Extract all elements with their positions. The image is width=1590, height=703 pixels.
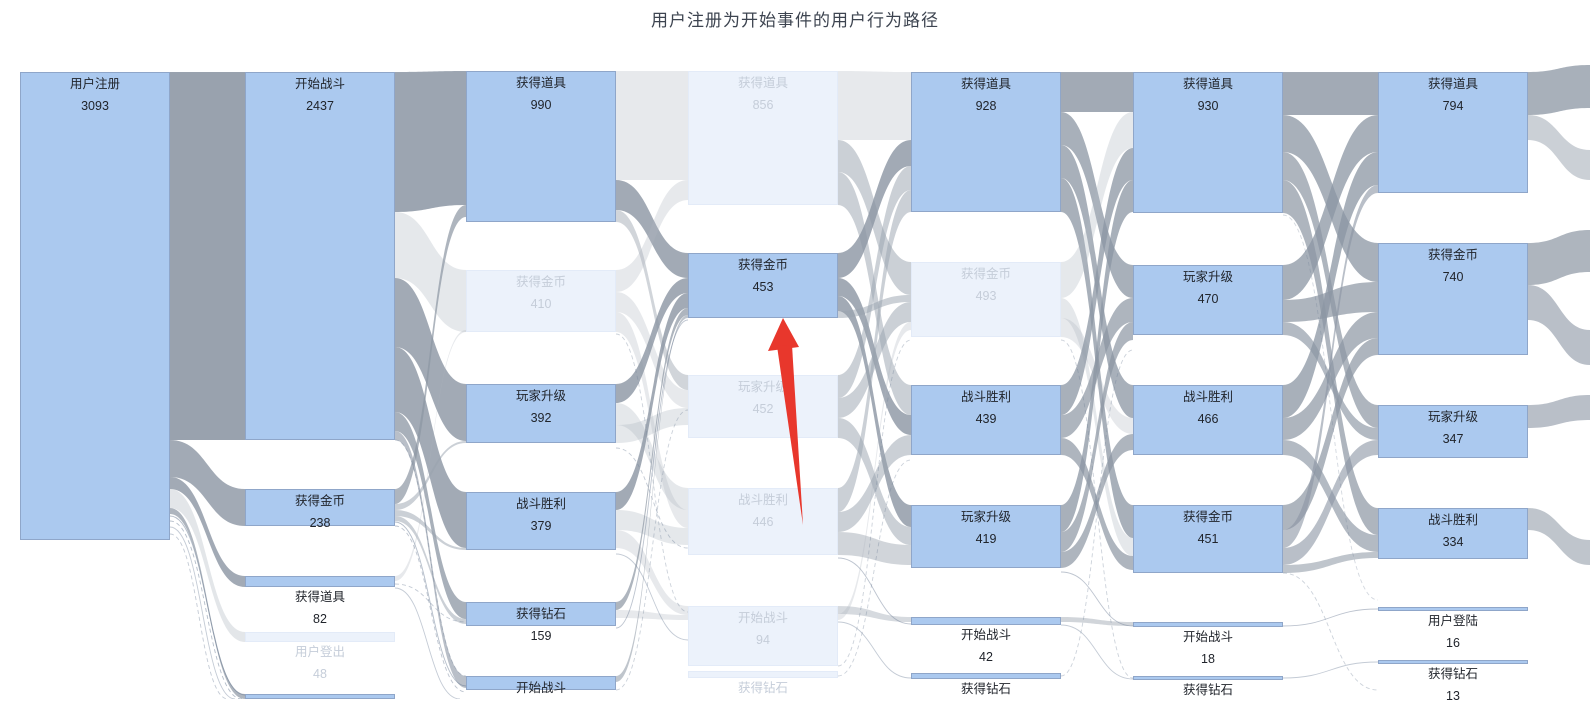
sankey-flow-line xyxy=(1283,662,1378,678)
sankey-chart: 用户注册为开始事件的用户行为路径 用户注册3093开始战斗2437获得金币238… xyxy=(0,0,1590,699)
sankey-node[interactable] xyxy=(1133,622,1283,627)
sankey-flow-line xyxy=(1283,573,1378,690)
sankey-node[interactable] xyxy=(1378,508,1528,559)
sankey-node[interactable] xyxy=(1378,243,1528,355)
sankey-node[interactable] xyxy=(911,673,1061,679)
sankey-link xyxy=(1061,180,1133,532)
sankey-node[interactable] xyxy=(1378,660,1528,664)
sankey-node[interactable] xyxy=(1133,72,1283,213)
sankey-node[interactable] xyxy=(688,375,838,438)
sankey-flow-line xyxy=(1283,609,1378,626)
sankey-node[interactable] xyxy=(245,72,395,440)
sankey-link xyxy=(1061,617,1133,626)
sankey-link xyxy=(1528,395,1590,428)
sankey-node[interactable] xyxy=(466,71,616,222)
sankey-link xyxy=(395,71,466,212)
sankey-node[interactable] xyxy=(688,488,838,555)
sankey-flow-line xyxy=(170,521,242,699)
sankey-node[interactable] xyxy=(466,492,616,550)
sankey-node[interactable] xyxy=(1133,265,1283,335)
sankey-node[interactable] xyxy=(466,602,616,626)
sankey-node[interactable] xyxy=(688,671,838,678)
sankey-node[interactable] xyxy=(911,262,1061,337)
sankey-node[interactable] xyxy=(688,606,838,666)
sankey-node[interactable] xyxy=(466,270,616,332)
sankey-node[interactable] xyxy=(20,72,170,540)
sankey-node[interactable] xyxy=(1378,405,1528,458)
sankey-link xyxy=(838,71,911,140)
sankey-node[interactable] xyxy=(245,576,395,587)
sankey-link xyxy=(616,71,688,180)
sankey-node[interactable] xyxy=(911,505,1061,568)
sankey-flow-line xyxy=(170,516,245,695)
sankey-node[interactable] xyxy=(245,489,395,526)
sankey-flow-line xyxy=(395,588,460,699)
sankey-node[interactable] xyxy=(1378,72,1528,193)
sankey-flow-line xyxy=(838,622,911,678)
sankey-link xyxy=(1528,508,1590,565)
sankey-node[interactable] xyxy=(1133,505,1283,573)
sankey-link xyxy=(1061,72,1133,112)
sankey-node[interactable] xyxy=(911,617,1061,625)
sankey-node[interactable] xyxy=(911,72,1061,212)
sankey-node[interactable] xyxy=(466,676,616,690)
sankey-link xyxy=(1528,285,1590,365)
sankey-link xyxy=(1528,65,1590,115)
sankey-node[interactable] xyxy=(1378,607,1528,611)
sankey-node[interactable] xyxy=(688,253,838,318)
sankey-node[interactable] xyxy=(1133,385,1283,455)
sankey-node[interactable] xyxy=(911,385,1061,455)
sankey-link xyxy=(1528,115,1590,180)
sankey-node[interactable] xyxy=(245,632,395,642)
sankey-link xyxy=(1528,230,1590,285)
sankey-node[interactable] xyxy=(466,384,616,443)
sankey-flow-line xyxy=(1061,625,1133,679)
sankey-node[interactable] xyxy=(1133,676,1283,680)
sankey-link xyxy=(170,72,245,440)
sankey-link xyxy=(1283,72,1378,115)
sankey-node[interactable] xyxy=(688,71,838,205)
sankey-node[interactable] xyxy=(245,694,395,699)
